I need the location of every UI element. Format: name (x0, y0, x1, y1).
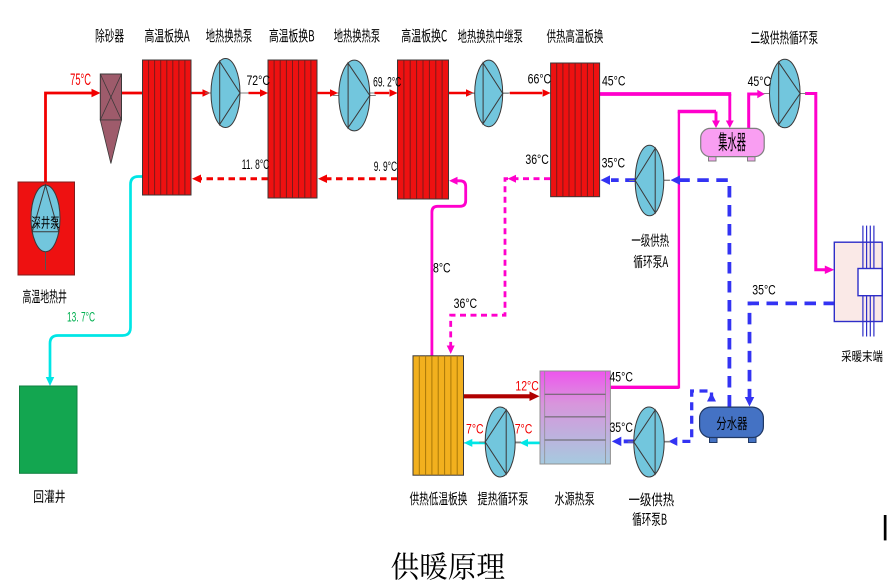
svg-text:12°C: 12°C (515, 378, 538, 394)
svg-text:45°C: 45°C (602, 73, 625, 89)
svg-text:45°C: 45°C (609, 369, 632, 385)
svg-text:35°C: 35°C (602, 155, 625, 171)
svg-text:35°C: 35°C (609, 419, 632, 435)
svg-text:75°C: 75°C (70, 70, 91, 89)
svg-text:7°C: 7°C (466, 421, 484, 437)
svg-text:7°C: 7°C (515, 421, 533, 437)
svg-text:69. 2°C: 69. 2°C (373, 76, 401, 91)
svg-text:11. 8°C: 11. 8°C (242, 158, 269, 173)
svg-text:35°C: 35°C (752, 282, 775, 298)
svg-text:9. 9°C: 9. 9°C (374, 160, 397, 175)
svg-text:36°C: 36°C (525, 152, 548, 168)
svg-text:13. 7°C: 13. 7°C (67, 310, 95, 325)
svg-text:36°C: 36°C (454, 296, 477, 312)
svg-text:8°C: 8°C (433, 260, 451, 276)
svg-text:66°C: 66°C (528, 71, 551, 87)
svg-text:45°C: 45°C (748, 74, 771, 90)
svg-text:72°C: 72°C (246, 72, 269, 88)
